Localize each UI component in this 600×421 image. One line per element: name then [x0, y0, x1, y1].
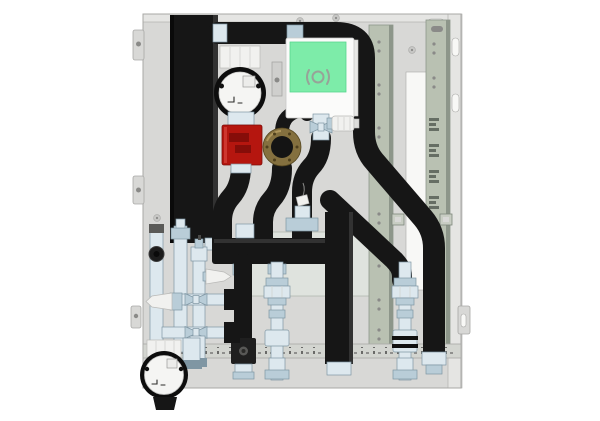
- pipe-end-fitting: [422, 352, 446, 365]
- rail-hook-slot: [431, 26, 443, 32]
- pump-display-window: [167, 359, 177, 368]
- product-render-stage: [0, 0, 600, 421]
- rail-clip: [392, 214, 404, 225]
- controller-cover-green: [290, 42, 346, 92]
- pump-display-window: [243, 76, 255, 87]
- pump-face: [145, 356, 184, 395]
- drain-knob: [149, 247, 164, 262]
- rail-clip: [440, 214, 452, 225]
- heat-interface-unit-render: [0, 0, 600, 421]
- mounting-bracket-small: [272, 62, 282, 96]
- pump-foot: [153, 397, 177, 410]
- insulated-pipe-center: [325, 212, 353, 375]
- circulation-pump-top: [214, 46, 266, 173]
